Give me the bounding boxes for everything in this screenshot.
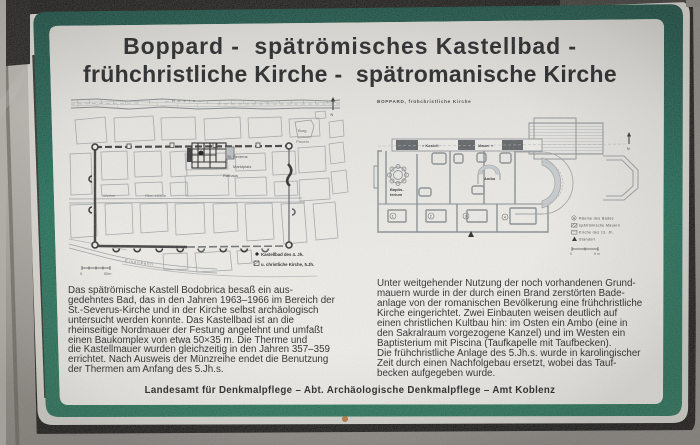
svg-text:— R h e i n —: — R h e i n — <box>165 98 203 103</box>
svg-text:5 m: 5 m <box>594 252 600 256</box>
svg-text:50m: 50m <box>104 272 111 276</box>
svg-text:Mauer »: Mauer » <box>478 143 494 148</box>
svg-text:Ambo: Ambo <box>484 176 496 181</box>
svg-text:N: N <box>331 113 334 117</box>
svg-text:0: 0 <box>80 272 82 276</box>
svg-text:Kastellbad des 4. Jh.: Kastellbad des 4. Jh. <box>261 252 304 257</box>
svg-text:N: N <box>627 147 630 151</box>
svg-text:0: 0 <box>570 252 572 256</box>
svg-text:2: 2 <box>430 214 432 218</box>
svg-text:Burg: Burg <box>298 128 306 133</box>
svg-text:spätrömische Mauern: spätrömische Mauern <box>579 224 620 228</box>
svg-text:Räume des Bades: Räume des Bades <box>579 217 614 221</box>
svg-text:BOPPARD, frühchristliche Kirch: BOPPARD, frühchristliche Kirche <box>377 99 471 104</box>
svg-text:Standort: Standort <box>579 238 595 242</box>
svg-text:3: 3 <box>465 214 467 218</box>
svg-text:St. Severus: St. Severus <box>227 154 248 159</box>
svg-text:u. christliche Kirche, 5.Jh.: u. christliche Kirche, 5.Jh. <box>261 262 314 267</box>
svg-text:Kirche des 13. Jh.: Kirche des 13. Jh. <box>579 231 614 235</box>
svg-text:Marktplatz: Marktplatz <box>233 164 251 169</box>
svg-text:4: 4 <box>504 215 506 219</box>
svg-text:Piscein: Piscein <box>296 139 309 144</box>
svg-text:Weiher: Weiher <box>103 193 116 198</box>
svg-text:A: A <box>573 216 576 220</box>
svg-text:terium: terium <box>390 192 403 197</box>
svg-text:Obe–straße: Obe–straße <box>145 193 167 198</box>
svg-text:1: 1 <box>392 214 394 218</box>
svg-text:Rathaus: Rathaus <box>223 173 238 178</box>
